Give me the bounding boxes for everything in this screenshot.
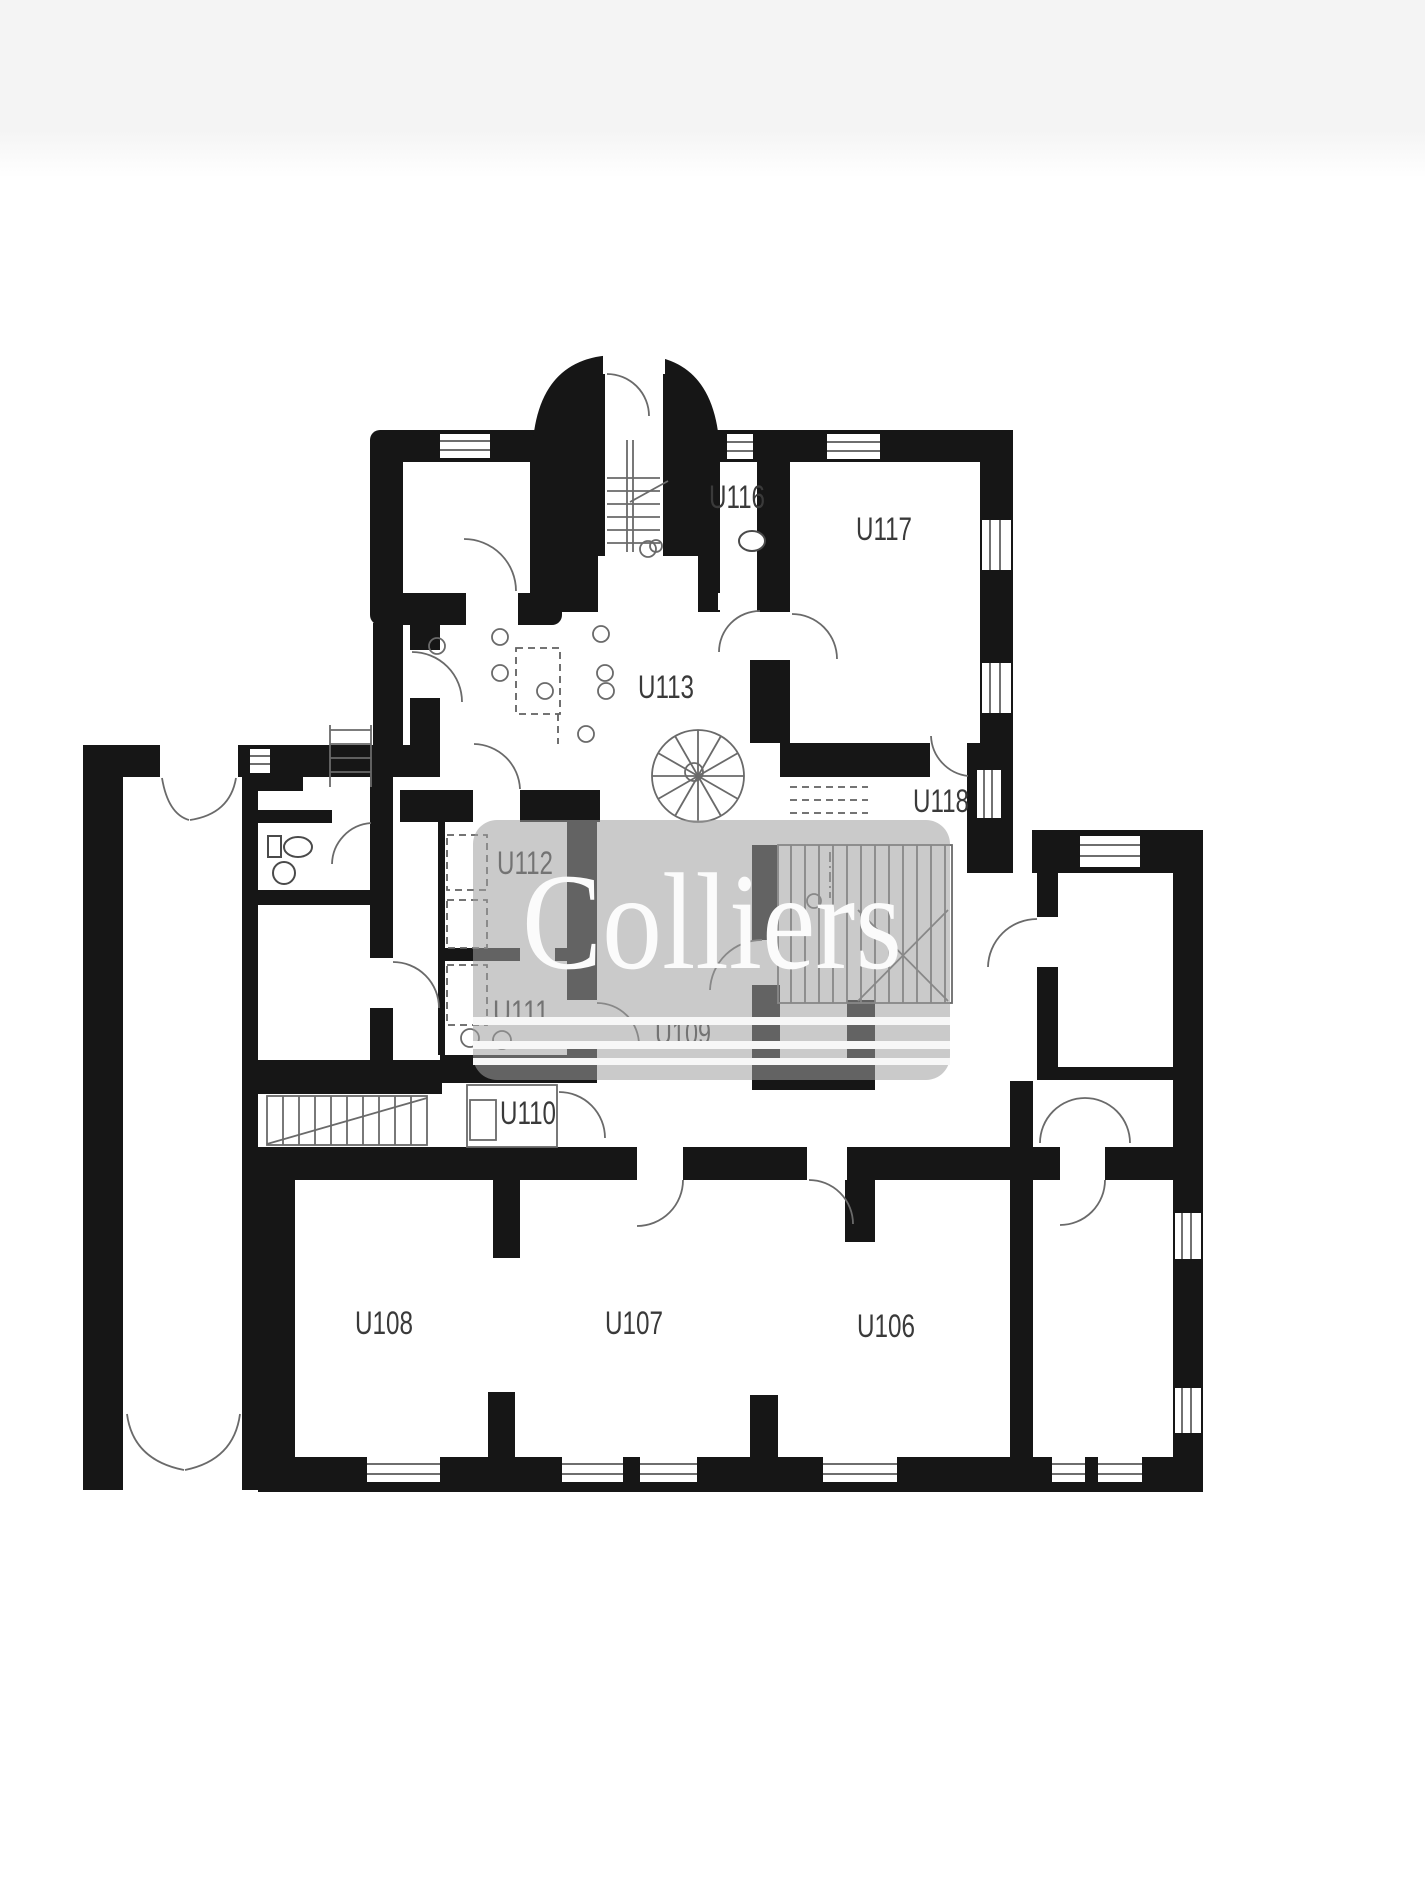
room-label-u107: U107: [605, 1305, 663, 1341]
wall-u117-bottom: [780, 743, 930, 777]
plan-line: [562, 1457, 623, 1482]
window: [727, 434, 753, 459]
plan-line: [1052, 1457, 1085, 1482]
wall-roomF-top-a: [1033, 1147, 1060, 1180]
window: [1175, 1213, 1201, 1259]
wall-corridor-right: [242, 777, 258, 1490]
door-opening-u116: [718, 593, 757, 610]
watermark-rule: [473, 1017, 950, 1025]
watermark-logo-text: Colliers: [522, 845, 902, 998]
floor-plan-drawing: U116 U117 U113 U118 U112 U111 U109 U110 …: [0, 0, 1425, 1900]
room-label-u116: U116: [709, 479, 765, 515]
door-arc-corridor: [412, 652, 462, 702]
window: [823, 1457, 897, 1482]
door-arc-roomE: [988, 919, 1037, 967]
plan-line: [492, 665, 508, 681]
plan-line: [597, 665, 613, 681]
window: [367, 1457, 440, 1482]
door-arc-entrance-left-leaf: [162, 778, 189, 820]
colliers-watermark: Colliers: [473, 820, 950, 1080]
plan-line: [1098, 1457, 1142, 1482]
window: [977, 770, 1001, 818]
wall-u108-left: [258, 1180, 295, 1490]
door-arc-lobby-right-leaf: [1085, 1098, 1130, 1143]
wall-storage-bottom: [242, 1060, 442, 1094]
wall-wc-storage-divider: [258, 890, 393, 905]
window: [250, 749, 270, 773]
window: [982, 520, 1011, 570]
plan-line: [250, 749, 270, 773]
floorplan-page: U116 U117 U113 U118 U112 U111 U109 U110 …: [0, 0, 1425, 1900]
door-opening-wc: [332, 810, 370, 823]
window: [640, 1457, 697, 1482]
window: [827, 434, 880, 459]
door-arc-u107: [637, 1180, 683, 1226]
wall-u107-u106-stub-bottom: [750, 1395, 778, 1457]
wall-u113-left-b: [410, 698, 440, 777]
door-arc-storage: [393, 962, 439, 1008]
watermark-rule: [473, 1041, 950, 1049]
plan-line: [982, 520, 1011, 570]
interior-tower: [605, 372, 663, 572]
room-label-u113: U113: [638, 669, 694, 705]
wall-top-left-a: [123, 745, 160, 777]
plan-line: [367, 1457, 440, 1482]
door-arc-wc: [332, 823, 371, 864]
room-label-u110: U110: [500, 1095, 556, 1131]
basin-icon: [739, 531, 765, 551]
plan-line: [1175, 1213, 1201, 1259]
room-label-u108: U108: [355, 1305, 413, 1341]
window: [562, 1457, 623, 1482]
plan-line: [982, 663, 1011, 713]
watermark-rule: [473, 1058, 950, 1065]
plan-line: [492, 629, 508, 645]
basement-staircase: [267, 1096, 427, 1145]
plan-line: [470, 1100, 496, 1140]
plan-line: [516, 648, 560, 714]
wall-u117-lower-left: [750, 660, 790, 743]
window: [982, 663, 1011, 713]
wall-roomF-top-b: [1105, 1147, 1173, 1180]
door-arc-u112: [474, 744, 520, 789]
opening-tower-bottom: [598, 556, 698, 612]
plan-line: [827, 434, 880, 459]
door-opening-storage: [370, 958, 393, 1008]
window: [1080, 836, 1140, 867]
plan-line: [578, 726, 594, 742]
sink-icon: [273, 862, 295, 884]
wall-roomE-left-a: [1037, 873, 1058, 917]
interior-topleft-room: [403, 462, 530, 593]
window: [1052, 1457, 1085, 1482]
door-arc-u116: [719, 611, 760, 652]
wall-roomE-left-b: [1037, 967, 1058, 1070]
wall-wc-right: [370, 777, 393, 1060]
stair-direction-dashes: [790, 787, 868, 813]
plan-line: [593, 626, 609, 642]
door-arc-roomF: [1060, 1180, 1105, 1225]
door-opening-tower-top: [603, 348, 665, 374]
plan-line: [537, 683, 553, 699]
window: [1175, 1388, 1201, 1433]
plan-line: [1175, 1388, 1201, 1433]
wall-left-outer: [83, 745, 123, 1490]
door-arc-entrance-right-leaf: [190, 778, 236, 820]
window: [440, 434, 490, 458]
toilet-bowl-icon: [284, 837, 312, 857]
plan-line: [598, 683, 614, 699]
door-opening-u112: [473, 790, 520, 822]
door-arc-u117: [792, 614, 837, 659]
door-arc-exit-right-leaf: [185, 1414, 240, 1470]
plan-line: [1080, 836, 1140, 867]
plan-line: [977, 770, 1001, 818]
door-opening-topleft-room: [466, 593, 518, 625]
spiral-staircase: [652, 730, 744, 822]
plan-line: [823, 1457, 897, 1482]
wall-u106-right: [1010, 1081, 1033, 1460]
window: [1098, 1457, 1142, 1482]
plan-line: [727, 434, 753, 459]
plan-line: [440, 434, 490, 458]
wall-roomE-bottom: [1037, 1067, 1173, 1080]
wall-u107-u106-stub-top: [845, 1180, 875, 1242]
door-opening-u107: [637, 1147, 683, 1180]
wall-u108-u107-stub-bottom: [488, 1392, 515, 1457]
door-opening-u106: [807, 1147, 847, 1180]
wall-u117-right: [980, 430, 1013, 777]
door-arc-lobby-left-leaf: [1040, 1098, 1085, 1143]
room-label-u118: U118: [913, 783, 969, 819]
room-label-u106: U106: [857, 1308, 915, 1344]
plan-line: [640, 1457, 697, 1482]
door-arc-exit-left-leaf: [127, 1414, 184, 1470]
wall-u108-u107-stub-top: [493, 1180, 520, 1258]
door-opening-roomF: [1060, 1147, 1105, 1180]
door-arc-u110: [559, 1092, 605, 1138]
door-opening-u117-u118: [930, 743, 967, 777]
room-label-u117: U117: [856, 511, 912, 547]
wall-bath-left-thin: [438, 822, 445, 1055]
wall-room-link: [373, 623, 403, 745]
toilet-tank-icon: [268, 836, 281, 857]
